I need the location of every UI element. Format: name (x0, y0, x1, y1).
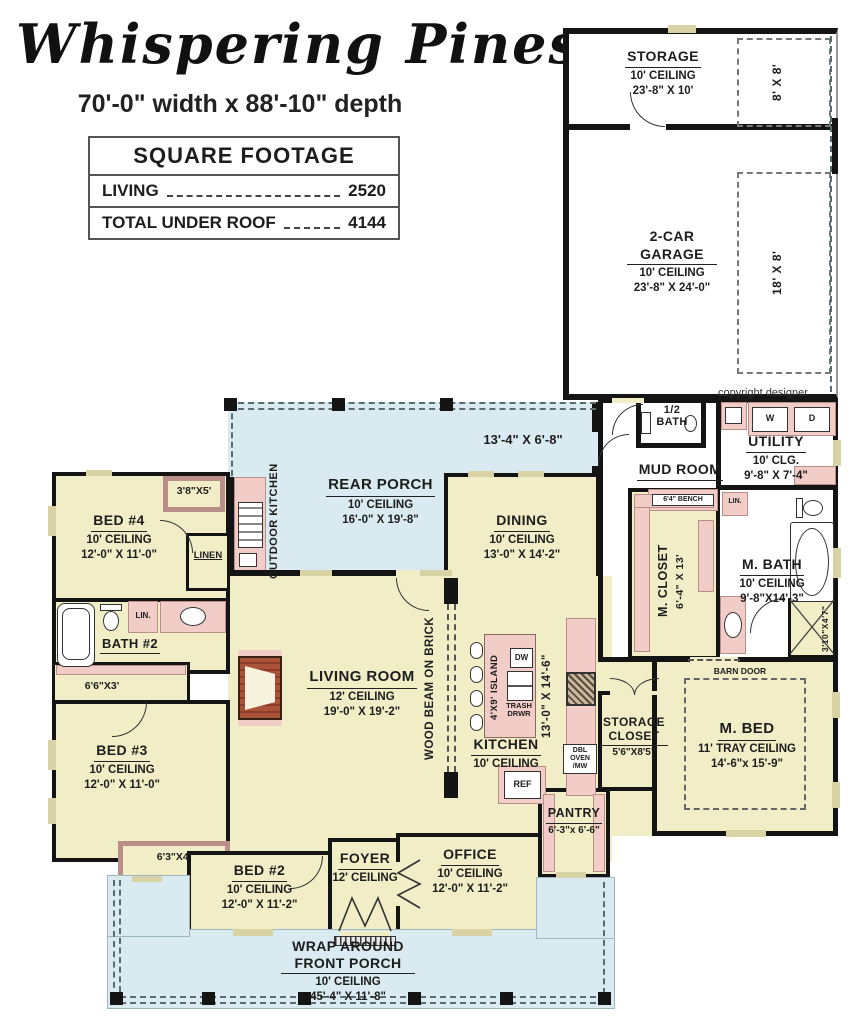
mbath-toilet-icon (803, 500, 823, 516)
porch-column (598, 992, 611, 1005)
kitchen-label: KITCHEN 10' CEILING (468, 736, 544, 771)
porch-left-dash (113, 880, 115, 998)
bench-label: 6'4" BENCH (652, 496, 714, 503)
mbed-window-right2 (832, 782, 840, 808)
bed4-dims: 12'-0" X 11'-0" (81, 548, 157, 562)
dining-window2 (518, 471, 544, 477)
bath2-name: BATH #2 (100, 636, 160, 654)
stool-icon (470, 666, 483, 683)
foyer-name: FOYER (338, 850, 392, 870)
porch-column (202, 992, 215, 1005)
toilet-tank-bath2 (100, 604, 122, 611)
square-footage-table: SQUARE FOOTAGE LIVING 2520 TOTAL UNDER R… (88, 136, 400, 240)
mbath-lin-label: LIN. (722, 498, 748, 505)
living-label: LIVING ROOM 12' CEILING 19'-0" X 19'-2" (292, 668, 432, 720)
bed4-name: BED #4 (91, 512, 146, 532)
total-label: TOTAL UNDER ROOF (102, 213, 276, 233)
dash-leader (284, 227, 340, 229)
kitchen-rear-window (420, 570, 452, 576)
foyer-label: FOYER 12' CEILING (330, 850, 400, 885)
halfbath-label: 1/2 BATH (648, 404, 696, 429)
mcloset-shelf-left (634, 494, 650, 652)
pantry-label: PANTRY 6'-3"x 6'-6" (540, 806, 608, 837)
beam-post-bottom (444, 772, 458, 798)
wood-beam-dash2 (454, 604, 456, 772)
bath2-sink-icon (180, 607, 206, 626)
storage-ceiling: 10' CEILING (630, 69, 695, 83)
storage-closet-name: STORAGE CLOSET (600, 716, 668, 746)
barn-door-label: BARN DOOR (700, 666, 780, 676)
dining-dims: 13'-0" X 14'-2" (484, 548, 560, 562)
outdoor-cabinet (239, 553, 257, 567)
mbed-ceiling: 11' TRAY CEILING (698, 742, 796, 756)
bed4-ceiling: 10' CEILING (86, 533, 151, 547)
double-oven-label: DBL OVEN /MW (563, 747, 597, 771)
porch-column (110, 992, 123, 1005)
utility-ceiling: 10' CLG. (753, 454, 799, 468)
bed4-closet-dim: 3'8"X5' (166, 485, 222, 497)
porch-post (440, 398, 453, 411)
mbath-name: M. BATH (740, 556, 804, 576)
garage-entry-opening (612, 398, 644, 403)
grill-icon (238, 502, 263, 548)
bed2-label: BED #2 10' CEILING 12'-0" X 11'-2" (202, 862, 317, 912)
mbath-toilet-tank (796, 498, 803, 518)
garage-ceiling: 10' CEILING (639, 266, 704, 280)
bed3-closet-dim: 6'6"X3' (62, 680, 142, 692)
mbath-ceiling: 10' CEILING (739, 577, 804, 591)
living-dims: 19'-0" X 19'-2" (324, 705, 400, 719)
trash-drawer-label: TRASH DRWR (502, 702, 536, 719)
mbath-window (833, 548, 841, 578)
bed4-label: BED #4 10' CEILING 12'-0" X 11'-0" (60, 512, 178, 562)
porch-left-dash2 (119, 880, 121, 992)
foyer-ceiling: 12' CEILING (332, 871, 397, 885)
pantry-name: PANTRY (546, 806, 602, 824)
garage-room-label: 2-CAR GARAGE 10' CEILING 23'-8" X 24'-0" (592, 228, 752, 296)
mbath-dims: 9'-8"X14'-3" (740, 592, 804, 606)
living-rear-window (300, 570, 332, 576)
island-label: 4'X9' ISLAND (489, 646, 500, 728)
bed3-window2 (48, 798, 56, 824)
bed2-name: BED #2 (232, 862, 287, 882)
mcloset-name: M. CLOSET (656, 522, 670, 640)
outdoor-kitchen-label: OUTDOOR KITCHEN (268, 460, 280, 582)
utility-label: UTILITY 10' CLG. 9'-8" X 7'-4" (722, 433, 830, 483)
bed3-label: BED #3 10' CEILING 12'-0" X 11'-0" (62, 742, 182, 792)
mbed-label: M. BED 11' TRAY CEILING 14'-6"x 15'-9" (672, 720, 822, 772)
rear-porch-label: REAR PORCH 10' CEILING 16'-0" X 19'-8" (298, 476, 463, 528)
bed3-dims: 12'-0" X 11'-0" (84, 778, 160, 792)
garage-door-dashes (830, 36, 832, 392)
storage-pad-dim: 8' X 8' (770, 52, 784, 112)
utility-sink-icon (725, 407, 742, 424)
bed2-ceiling: 10' CEILING (227, 883, 292, 897)
garage-dims: 23'-8" X 24'-0" (634, 281, 710, 295)
dining-name: DINING (494, 512, 549, 532)
front-porch-dims: 45'-4" X 11'-8" (310, 990, 386, 1004)
plan-overall-dimensions: 70'-0" width x 88'-10" depth (70, 90, 410, 119)
garage-right-wall-stub (832, 118, 838, 174)
mcloset-dims: 6'-4" X 13' (674, 528, 686, 634)
barn-door-dash (688, 659, 740, 661)
front-porch-label: WRAP AROUND FRONT PORCH 10' CEILING 45'-… (248, 938, 448, 1004)
storage-pad-dashed (737, 38, 831, 127)
range-icon (566, 672, 596, 706)
floor-plan-sheet: Whispering Pines 70'-0" width x 88'-10" … (0, 0, 854, 1024)
utility-name: UTILITY (746, 433, 806, 453)
porch-dining-dim: 13'-4" X 6'-8" (468, 432, 578, 447)
square-footage-heading: SQUARE FOOTAGE (90, 138, 398, 176)
bed2-dims: 12'-0" X 11'-2" (222, 898, 298, 912)
halfbath-name: 1/2 BATH (648, 404, 696, 429)
shower-dim-label: 3'10"X4'7" (820, 604, 830, 654)
office-label: OFFICE 10' CEILING 12'-0" X 11'-2" (410, 846, 530, 896)
kitchen-name: KITCHEN (471, 736, 540, 756)
porch-mud-door-opening (592, 432, 598, 466)
mudroom-label: MUD ROOM (632, 461, 728, 481)
dining-label: DINING 10' CEILING 13'-0" X 14'-2" (452, 512, 592, 562)
mbath-sink-icon (724, 612, 742, 638)
rear-porch-dims: 16'-0" X 19'-8" (342, 513, 418, 527)
storage-closet-label: STORAGE CLOSET 5'6"X8'5" (600, 716, 668, 759)
living-value: 2520 (348, 181, 386, 201)
dash-leader (167, 195, 341, 197)
rear-porch-name: REAR PORCH (326, 476, 435, 497)
office-name: OFFICE (441, 846, 499, 866)
mbed-name: M. BED (718, 720, 777, 741)
living-name: LIVING ROOM (307, 668, 416, 689)
rear-porch-ceiling: 10' CEILING (348, 498, 413, 512)
linen-label: LINEN (186, 550, 230, 561)
stool-icon (470, 690, 483, 707)
garage-name: 2-CAR GARAGE (627, 228, 717, 265)
wood-beam-dash (447, 604, 449, 772)
total-value: 4144 (348, 213, 386, 233)
dining-window (468, 471, 494, 477)
island-sink-icon (507, 671, 533, 701)
front-door-chevrons-icon (339, 898, 391, 931)
bed3-window (48, 740, 56, 770)
dishwasher-label: DW (510, 653, 533, 662)
table-row-living: LIVING 2520 (90, 176, 398, 208)
mbed-dims: 14'-6"x 15'-9" (711, 757, 783, 771)
refrigerator-label: REF (504, 779, 541, 789)
plan-title: Whispering Pines (16, 12, 581, 76)
bed2-window (233, 929, 273, 936)
pantry-window (556, 872, 586, 878)
kitchen-dim-label: 13'-0" X 14'-6" (541, 652, 553, 740)
storage-closet-dims: 5'6"X8'5" (612, 747, 655, 760)
porch-column (500, 992, 513, 1005)
utility-dims: 9'-8" X 7'-4" (744, 469, 808, 483)
living-label: LIVING (102, 181, 159, 201)
rear-porch-edge-dash (228, 402, 596, 404)
garage-pad-dim: 18' X 8' (770, 235, 784, 310)
mudroom-name: MUD ROOM (637, 461, 724, 481)
bed4-top-window (86, 470, 112, 476)
stool-icon (470, 714, 483, 731)
storage-room-label: STORAGE 10' CEILING 23'-8" X 10' (590, 48, 736, 98)
office-dims: 12'-0" X 11'-2" (432, 882, 508, 896)
bed2-closet-window (132, 876, 162, 882)
bath2-label: BATH #2 (78, 636, 182, 654)
rear-porch-edge-dash2 (228, 408, 596, 410)
table-row-total: TOTAL UNDER ROOF 4144 (90, 208, 398, 238)
copyright-text: copyright designer (718, 387, 808, 399)
dryer-label: D (794, 413, 830, 423)
beam-post-top (444, 578, 458, 604)
washer-label: W (752, 413, 788, 423)
bath2-lin-label: LIN. (128, 611, 158, 620)
storage-name: STORAGE (625, 48, 701, 68)
mbath-label: M. BATH 10' CEILING 9'-8"X14'-3" (712, 556, 832, 606)
office-window (452, 929, 492, 936)
office-ceiling: 10' CEILING (437, 867, 502, 881)
mbed-window-bottom (726, 830, 766, 837)
rear-porch-left-dash (231, 404, 233, 476)
mbed-window-right (832, 692, 840, 718)
porch-post (332, 398, 345, 411)
linen-closet (186, 533, 230, 591)
bed3-name: BED #3 (94, 742, 149, 762)
bed3-ceiling: 10' CEILING (89, 763, 154, 777)
bed4-window (48, 506, 56, 536)
storage-window (668, 25, 696, 33)
stool-icon (470, 642, 483, 659)
living-ceiling: 12' CEILING (329, 690, 394, 704)
pantry-dims: 6'-3"x 6'-6" (548, 825, 599, 838)
kitchen-ceiling: 10' CEILING (473, 757, 538, 771)
wood-beam-label: WOOD BEAM ON BRICK (424, 612, 436, 764)
porch-post (224, 398, 237, 411)
storage-dims: 23'-8" X 10' (633, 84, 694, 98)
front-porch-name: WRAP AROUND FRONT PORCH (281, 938, 415, 974)
toilet-bowl-bath2 (103, 611, 119, 631)
front-porch-ceiling: 10' CEILING (315, 975, 380, 989)
dining-ceiling: 10' CEILING (489, 533, 554, 547)
porch-right-dash (603, 882, 605, 994)
utility-window (833, 440, 841, 466)
